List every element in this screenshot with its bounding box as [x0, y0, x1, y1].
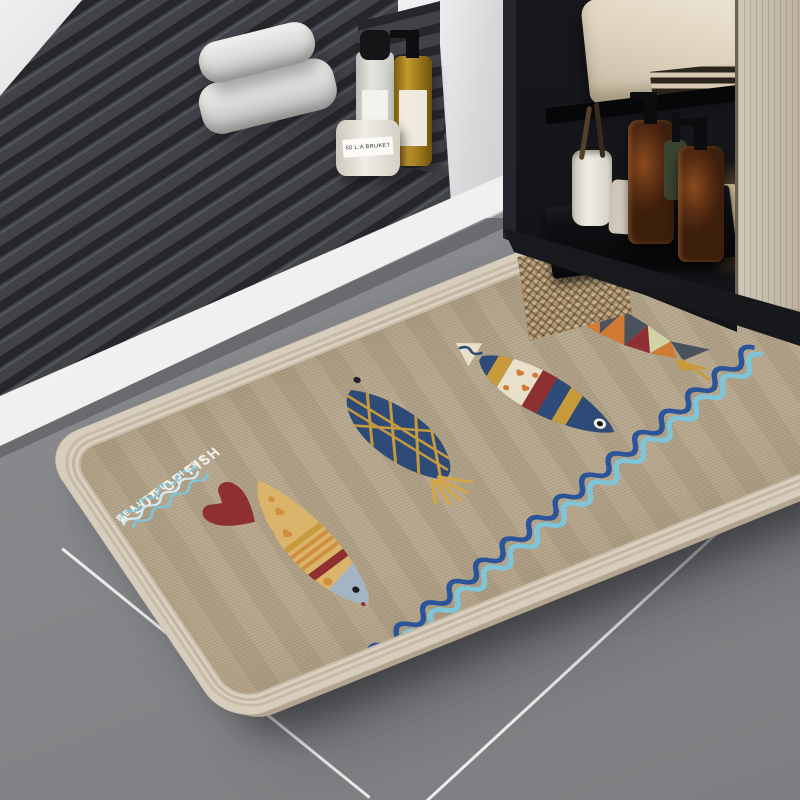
wood-panel	[735, 0, 800, 310]
navy-fish-illustration	[306, 370, 494, 522]
small-waves-icon	[114, 459, 213, 535]
amber-pump-bottle	[678, 146, 724, 262]
bathroom-scene: 50 L:A BRUKET A LOT OF FISH BEAUTIFUL HO…	[0, 0, 800, 800]
jar-label: 50 L:A BRUKET	[342, 136, 393, 157]
cream-jar: 50 L:A BRUKET	[336, 120, 400, 176]
yellow-fish-illustration	[210, 468, 414, 630]
cabinet-inner-wall	[503, 0, 516, 238]
toothbrush-cup	[572, 150, 612, 226]
pump-spout	[680, 118, 700, 126]
pump-spout	[390, 30, 410, 38]
pump-spout	[630, 92, 650, 100]
bottle-cap	[360, 30, 390, 60]
bottle-label	[362, 90, 388, 124]
pump-top	[672, 112, 680, 142]
bottle-label	[399, 90, 427, 146]
